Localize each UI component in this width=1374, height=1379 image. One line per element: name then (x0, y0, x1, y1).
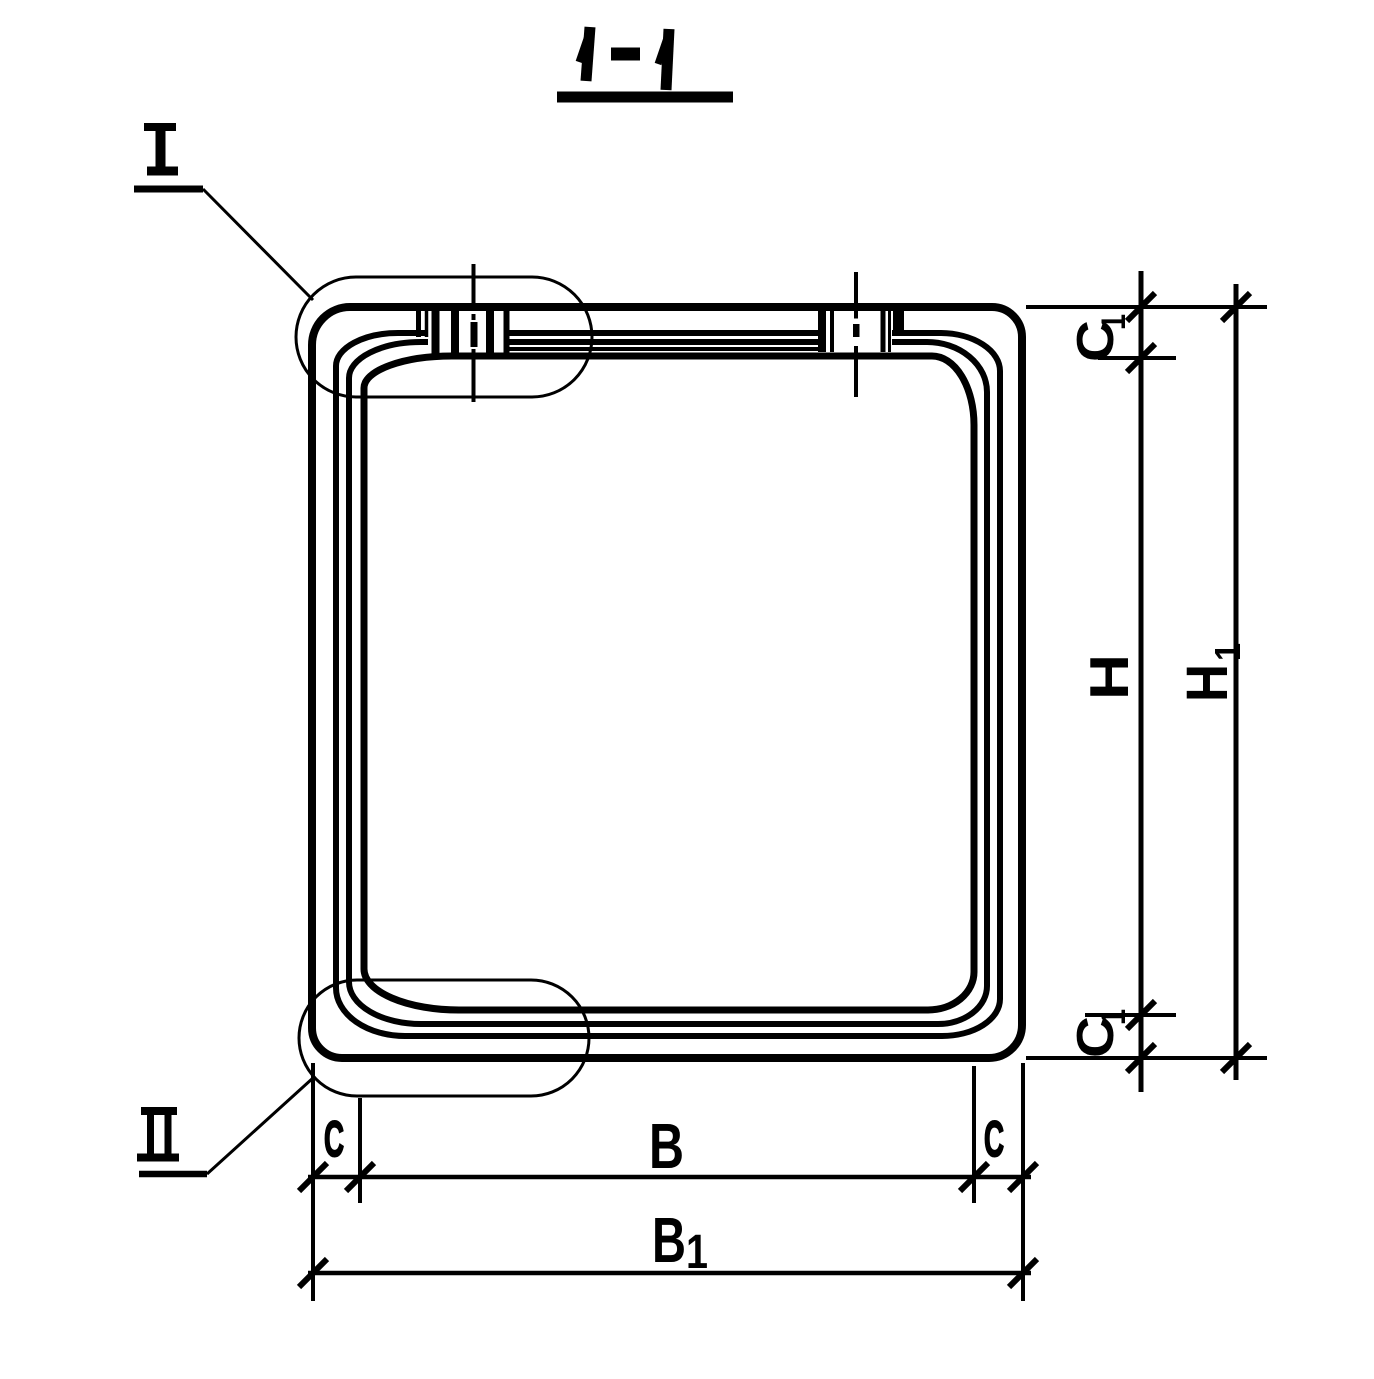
svg-text:1: 1 (1207, 643, 1248, 661)
svg-text:B: B (649, 1110, 684, 1182)
svg-text:1: 1 (1095, 314, 1133, 330)
svg-text:1: 1 (1095, 1009, 1133, 1025)
svg-text:B: B (652, 1204, 686, 1276)
svg-text:C: C (324, 1111, 344, 1167)
svg-text:1: 1 (686, 1226, 708, 1279)
svg-text:H: H (1175, 664, 1240, 702)
svg-text:C: C (984, 1111, 1004, 1167)
svg-text:H: H (1078, 654, 1140, 700)
